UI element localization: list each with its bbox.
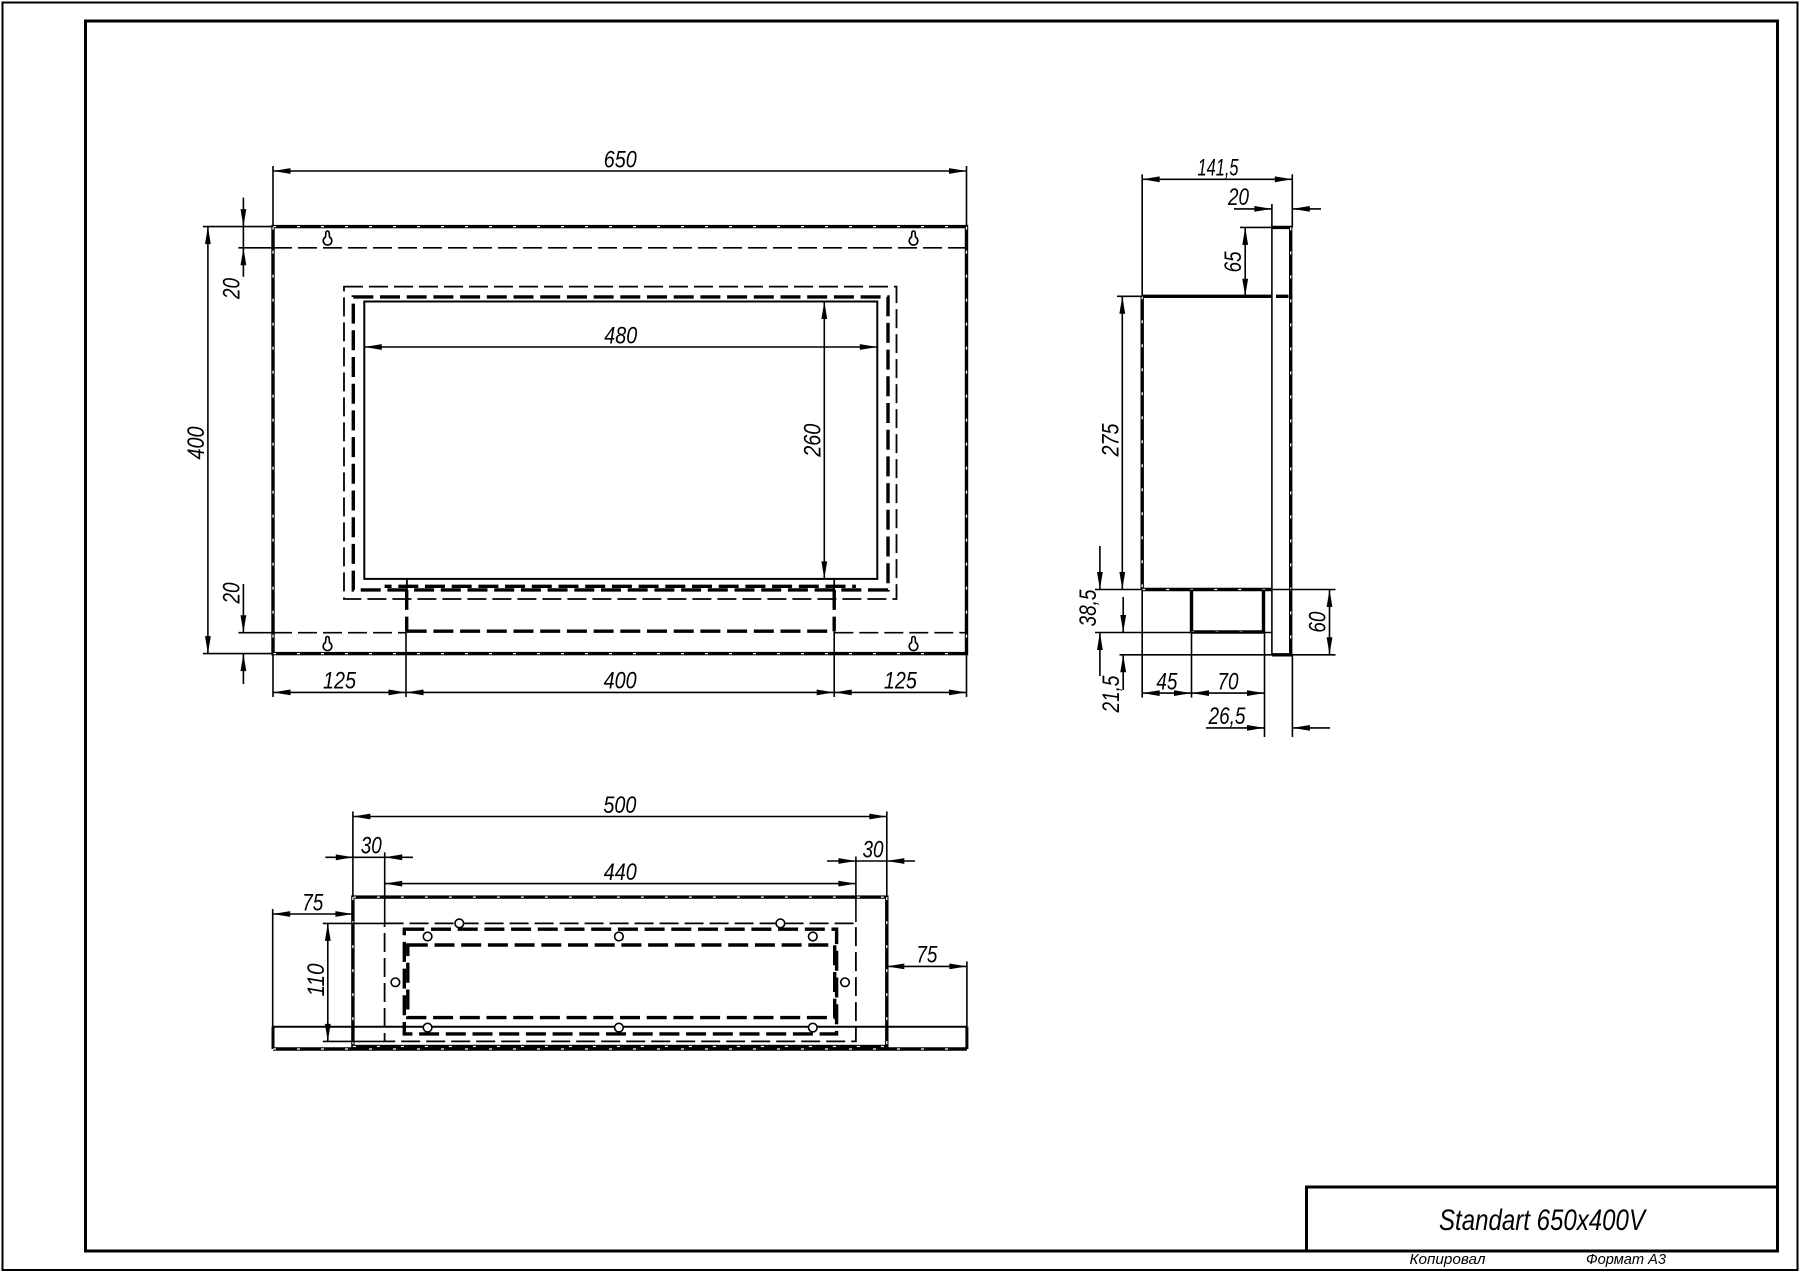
svg-text:650: 650 [604,146,637,173]
svg-text:Формат А3: Формат А3 [1586,1252,1666,1268]
svg-text:38,5: 38,5 [1075,589,1102,626]
svg-text:440: 440 [604,859,637,886]
svg-text:20: 20 [218,278,245,300]
svg-text:75: 75 [916,942,937,969]
svg-text:30: 30 [863,836,884,863]
svg-text:480: 480 [604,322,637,349]
svg-text:400: 400 [183,426,210,459]
svg-text:260: 260 [799,423,826,457]
svg-text:60: 60 [1305,611,1332,632]
svg-text:400: 400 [604,668,637,695]
svg-text:75: 75 [302,889,323,916]
svg-text:125: 125 [884,668,917,695]
svg-text:21,5: 21,5 [1098,675,1125,713]
svg-text:Standart 650x400V: Standart 650x400V [1439,1204,1647,1237]
svg-text:65: 65 [1220,251,1247,272]
svg-text:Копировал: Копировал [1410,1252,1486,1268]
svg-text:275: 275 [1097,423,1124,457]
svg-text:110: 110 [303,963,330,996]
svg-text:30: 30 [361,833,382,860]
svg-text:45: 45 [1156,668,1177,695]
svg-text:141,5: 141,5 [1198,155,1239,182]
svg-text:20: 20 [1227,184,1249,211]
svg-text:125: 125 [323,668,356,695]
svg-text:500: 500 [603,792,636,819]
svg-text:20: 20 [218,582,245,604]
svg-text:26,5: 26,5 [1208,703,1246,730]
svg-text:70: 70 [1218,668,1239,695]
